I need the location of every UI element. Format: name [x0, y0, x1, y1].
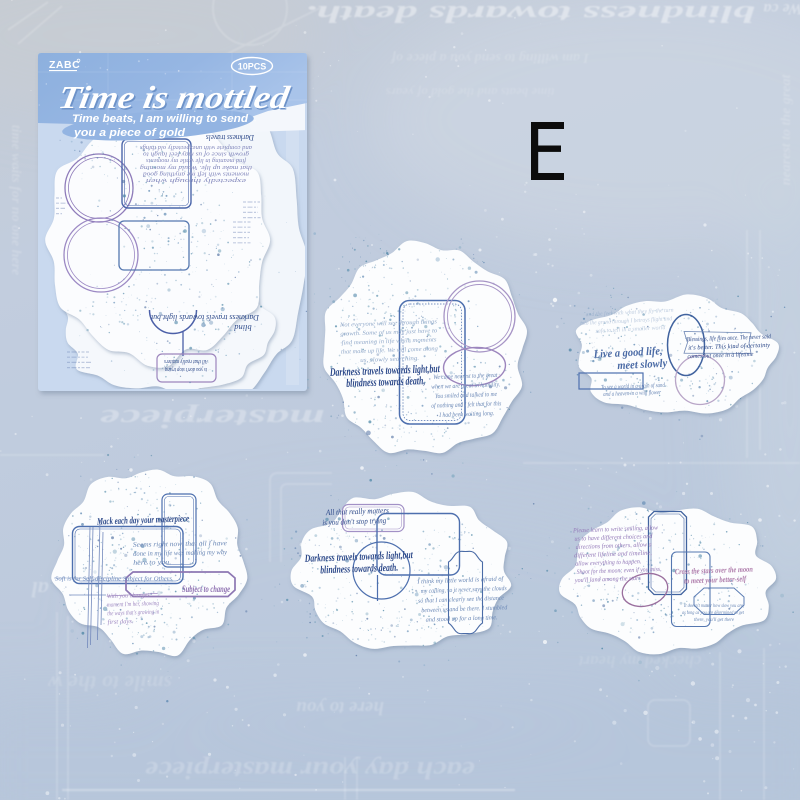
svg-text:smile to the w: smile to the w — [48, 671, 173, 696]
svg-text:and complete with unexpectedly: and complete with unexpectedly old thing… — [139, 144, 252, 150]
svg-text:here to you: here to you — [296, 697, 384, 718]
svg-text:Darkness travels towards light: Darkness travels towards light,but — [150, 313, 259, 323]
svg-text:time waits for no one here: time waits for no one here — [8, 125, 23, 276]
svg-text:here to you.: here to you. — [133, 558, 171, 567]
svg-text:I am willing to send you a pie: I am willing to send you a piece of — [390, 50, 590, 65]
svg-text:that make up life. Would my mo: that make up life. Would my morning — [140, 164, 252, 171]
svg-text:al: al — [31, 577, 49, 602]
svg-text:first days.: first days. — [107, 618, 134, 626]
svg-text:each day your masterpiece: each day your masterpiece — [145, 756, 475, 783]
svg-text:as long as you are determined: as long as you are determined to get — [682, 610, 744, 616]
svg-text:nearest to the great: nearest to the great — [779, 73, 794, 185]
svg-text:Time is mottled: Time is mottled — [56, 79, 293, 115]
svg-text:find meaning in life while my: find meaning in life while my moments — [145, 157, 246, 164]
svg-text:is you don't stop trying: is you don't stop trying — [165, 366, 207, 372]
svg-text:Subject to change: Subject to change — [182, 584, 230, 594]
svg-text:growth since of us may feel la: growth since of us may feel laugh to — [143, 151, 249, 158]
svg-text:10PCS: 10PCS — [238, 62, 267, 72]
svg-text:blindness towards death.: blindness towards death. — [305, 0, 755, 26]
svg-text:Darkness travels: Darkness travels — [206, 133, 255, 142]
svg-text:there, you'll get there: there, you'll get there — [694, 617, 734, 623]
svg-text:We ca: We ca — [763, 0, 800, 17]
svg-text:done in my life was making my: done in my life was making my way — [133, 548, 228, 558]
svg-text:masterpiece: masterpiece — [100, 404, 325, 433]
svg-text:blind: blind — [234, 323, 252, 333]
svg-text:ZABC: ZABC — [49, 59, 80, 71]
svg-text:Seems right now, that all: Seems right now, that all I have — [133, 539, 227, 549]
svg-text:It doesn't matter how slow you: It doesn't matter how slow you are, — [683, 603, 744, 609]
svg-text:time beats and the gold of yea: time beats and the gold of years — [386, 85, 555, 100]
svg-text:Time beats, I am willing to se: Time beats, I am willing to send — [72, 113, 248, 125]
svg-text:Soft is for Self-discipline Su: Soft is for Self-discipline Subject for … — [55, 576, 172, 583]
svg-text:you a piece of gold: you a piece of gold — [73, 127, 185, 139]
svg-text:moments with left me anything: moments with left me anything good — [143, 170, 249, 177]
